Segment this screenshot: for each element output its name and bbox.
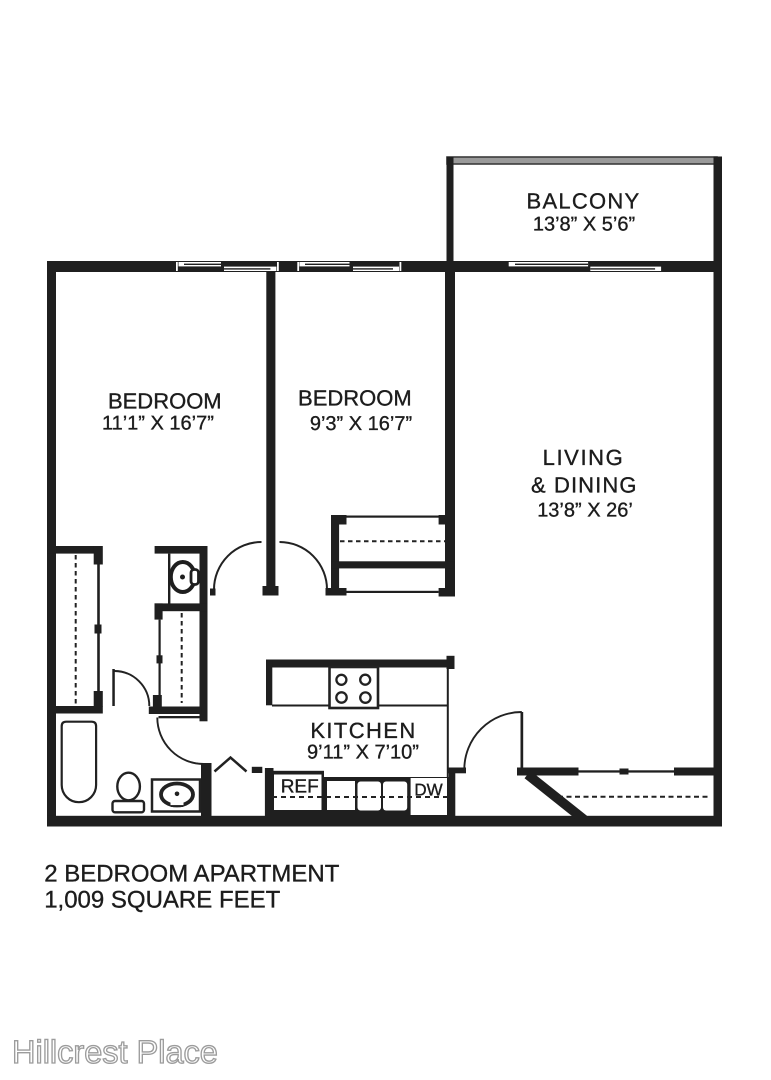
svg-text:BEDROOM: BEDROOM bbox=[108, 389, 222, 414]
svg-text:2 BEDROOM APARTMENT: 2 BEDROOM APARTMENT bbox=[44, 860, 340, 887]
svg-text:KITCHEN: KITCHEN bbox=[310, 718, 416, 743]
svg-text:Hillcrest Place: Hillcrest Place bbox=[12, 1034, 218, 1070]
svg-text:BALCONY: BALCONY bbox=[527, 189, 641, 214]
svg-text:1,009 SQUARE FEET: 1,009 SQUARE FEET bbox=[44, 887, 280, 914]
svg-text:REF: REF bbox=[281, 777, 319, 798]
svg-text:9’3” X 16’7”: 9’3” X 16’7” bbox=[310, 413, 412, 435]
svg-text:11’1” X 16’7”: 11’1” X 16’7” bbox=[102, 412, 214, 434]
svg-text:13’8” X 26’: 13’8” X 26’ bbox=[537, 500, 633, 522]
svg-text:BEDROOM: BEDROOM bbox=[298, 386, 412, 411]
svg-text:9’11” X 7’10”: 9’11” X 7’10” bbox=[307, 742, 419, 764]
svg-text:LIVING: LIVING bbox=[543, 445, 625, 470]
svg-text:& DINING: & DINING bbox=[531, 472, 638, 497]
svg-text:13’8” X 5’6”: 13’8” X 5’6” bbox=[533, 214, 635, 236]
